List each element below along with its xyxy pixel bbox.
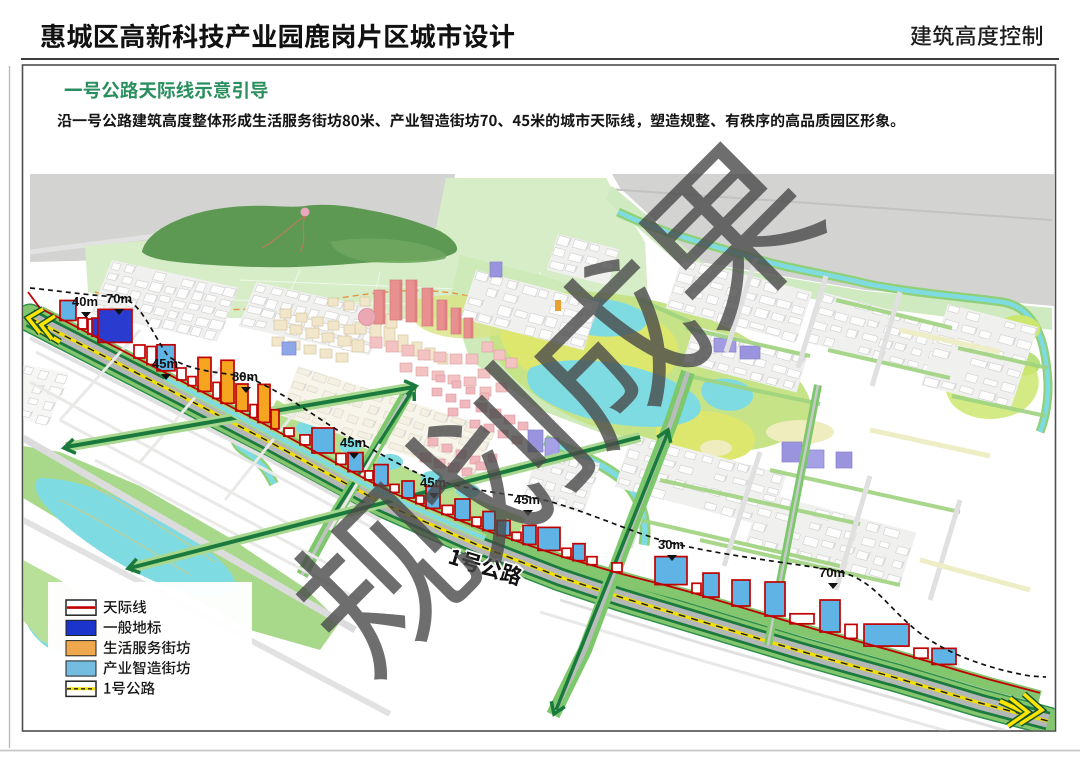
svg-text:30m: 30m [658, 537, 684, 552]
svg-text:40m: 40m [72, 294, 98, 309]
svg-text:45m: 45m [152, 356, 178, 371]
svg-text:70m: 70m [819, 565, 845, 580]
svg-text:45m: 45m [340, 435, 366, 450]
svg-text:70m: 70m [106, 291, 132, 306]
svg-text:80m: 80m [232, 369, 258, 384]
